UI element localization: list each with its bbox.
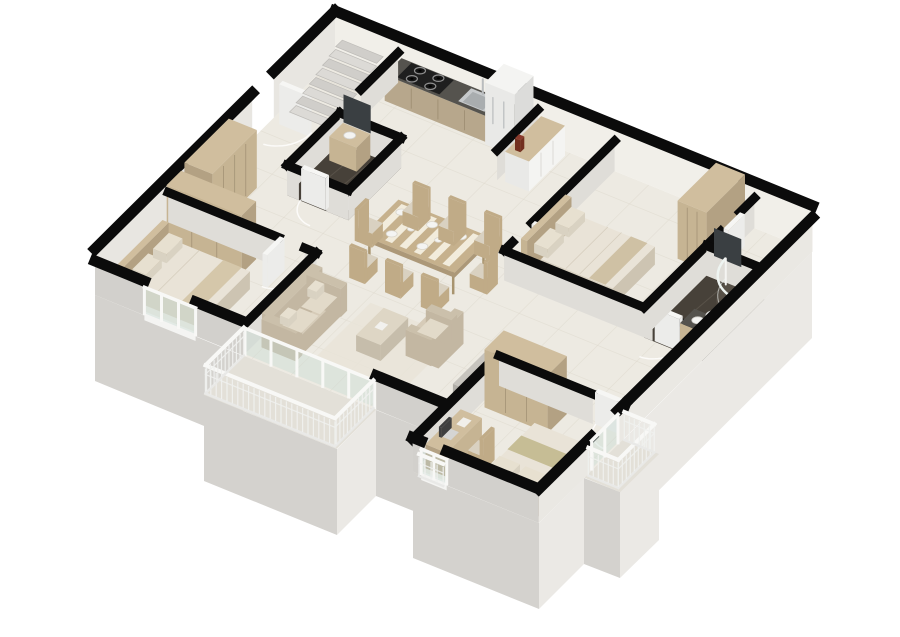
floorplan-image <box>0 0 900 637</box>
wc-basin <box>344 132 356 139</box>
wall-wc-sw-1 <box>287 165 299 200</box>
slab-face-balcony-b-sw <box>584 478 620 578</box>
floorplan-canvas <box>0 0 900 637</box>
fire-extinguisher <box>515 134 524 152</box>
